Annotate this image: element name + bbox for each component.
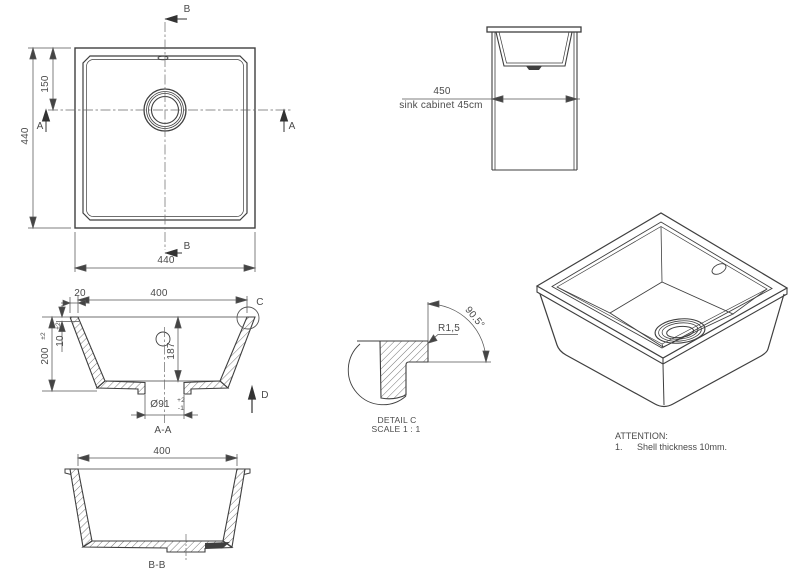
dim-200-height-tol: ±2 bbox=[41, 332, 48, 340]
cabinet-caption: sink cabinet 45cm bbox=[399, 101, 482, 111]
dim-400-opening-aa: 400 bbox=[150, 289, 167, 299]
dim-450-cabinet: 450 bbox=[433, 87, 450, 97]
section-aa-title: A-A bbox=[154, 426, 171, 436]
section-b-top-label: B bbox=[184, 5, 191, 15]
dim-150-drain-offset: 150 bbox=[41, 75, 51, 92]
dim-drain-tol-lower: -1 bbox=[178, 406, 184, 413]
dim-440-width: 440 bbox=[157, 256, 174, 266]
attention-title: ATTENTION: bbox=[615, 432, 668, 441]
section-aa-dimensions bbox=[42, 296, 247, 419]
section-bb-title: B-B bbox=[148, 561, 165, 571]
detail-c-scale: SCALE 1 : 1 bbox=[372, 425, 421, 434]
drain-iso bbox=[654, 316, 706, 345]
dim-440-height: 440 bbox=[21, 127, 31, 144]
attention-item-number: 1. bbox=[615, 443, 623, 452]
datum-d-arrow bbox=[249, 387, 256, 413]
overflow-iso bbox=[710, 262, 727, 277]
dim-20-flange: 20 bbox=[74, 289, 86, 299]
detail-c-marker-label: C bbox=[256, 298, 263, 308]
datum-d-label: D bbox=[261, 391, 268, 401]
section-bb-drawing bbox=[65, 469, 250, 552]
dim-187-depth: 187 bbox=[167, 342, 177, 359]
detail-c-drawing bbox=[348, 341, 428, 405]
drawing-sheet: B B A A 440 440 150 450 sink cabinet 45c… bbox=[0, 0, 800, 579]
section-a-left-label: A bbox=[37, 122, 44, 132]
dim-drain-diameter: Ø91 bbox=[150, 400, 170, 410]
section-b-bottom-label: B bbox=[184, 242, 191, 252]
detail-c-radius: R1,5 bbox=[438, 324, 460, 334]
isometric-view-drawing bbox=[537, 213, 787, 407]
section-aa-drawing bbox=[70, 317, 255, 394]
dim-200-height: 200 bbox=[41, 347, 51, 364]
dim-10-flange-thickness-tol: ±2 bbox=[56, 322, 63, 330]
drawing-canvas bbox=[0, 0, 800, 579]
section-a-right-label: A bbox=[289, 122, 296, 132]
dim-10-flange-thickness: 10 bbox=[56, 335, 66, 347]
top-view-dimensions bbox=[28, 48, 255, 272]
dim-drain-tol-upper: +2 bbox=[177, 398, 185, 405]
attention-item-text: Shell thickness 10mm. bbox=[637, 443, 727, 452]
dim-400-opening-bb: 400 bbox=[153, 447, 170, 457]
